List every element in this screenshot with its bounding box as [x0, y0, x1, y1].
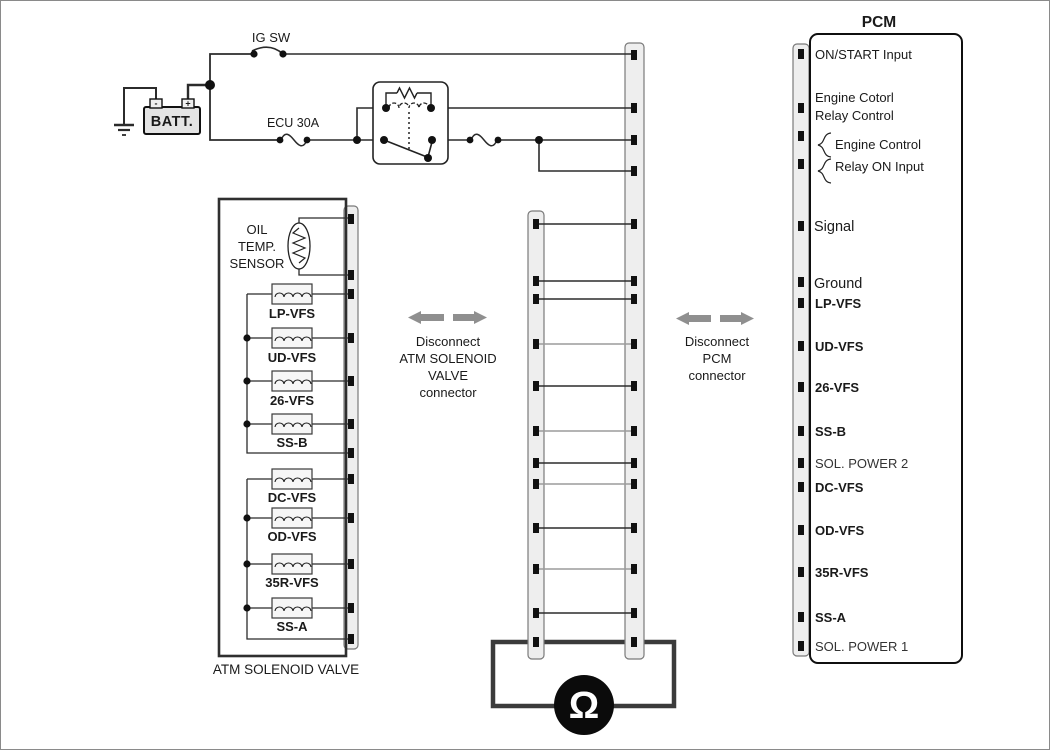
pcm-pin-label-relay-on-2: Relay ON Input	[835, 159, 924, 174]
pcm-pin-label-ss-b: SS-B	[815, 424, 846, 439]
pcm-pin-label-od-vfs: OD-VFS	[815, 523, 864, 538]
coil-label-35r-vfs: 35R-VFS	[265, 575, 319, 590]
pcm-title: PCM	[862, 14, 896, 31]
disconnect-atm-text: ATM SOLENOID	[399, 351, 496, 366]
pcm-pin-label-on-start: ON/START Input	[815, 47, 912, 62]
disconnect-atm-annotation: Disconnect ATM SOLENOID VALVE connector	[399, 311, 496, 400]
ohmmeter-symbol: Ω	[569, 685, 599, 727]
ground-icon	[114, 125, 134, 135]
pcm-pin-label-ud-vfs: UD-VFS	[815, 339, 864, 354]
pcm-pin-label-ground: Ground	[814, 276, 862, 292]
pcm-pin-label-sol-power-1: SOL. POWER 1	[815, 639, 908, 654]
battery-label: BATT.	[151, 114, 194, 130]
atm-solenoid-valve-box: OIL TEMP. SENSOR	[219, 199, 346, 656]
disconnect-pcm-text: connector	[688, 368, 746, 383]
oil-temp-sensor-label: TEMP.	[238, 239, 276, 254]
disconnect-atm-text: VALVE	[428, 368, 468, 383]
pcm-pin-label-sol-power-2: SOL. POWER 2	[815, 456, 908, 471]
coil-label-ss-b: SS-B	[276, 435, 307, 450]
ig-sw-label: IG SW	[252, 30, 291, 45]
disconnect-arrows-icon	[408, 311, 487, 324]
pcm-pin-label-signal: Signal	[814, 219, 854, 235]
pcm-pin-label-relay-control-2: Relay Control	[815, 108, 894, 123]
coil-label-od-vfs: OD-VFS	[267, 529, 316, 544]
ecu-fuse-icon	[281, 134, 307, 146]
pcm-pin-label-dc-vfs: DC-VFS	[815, 480, 864, 495]
relay-fuse-icon	[471, 134, 497, 146]
ecu-fuse-label: ECU 30A	[267, 116, 320, 130]
wiring-diagram-page: - + BATT. IG SW ECU 30A OIL TEMP. SENSOR	[0, 0, 1050, 750]
coil-label-26-vfs: 26-VFS	[270, 393, 314, 408]
disconnect-pcm-annotation: Disconnect PCM connector	[676, 312, 754, 383]
disconnect-pcm-text: PCM	[703, 351, 732, 366]
wiring-diagram: - + BATT. IG SW ECU 30A OIL TEMP. SENSOR	[1, 1, 1050, 751]
pcm-pin-label-relay-on-1: Engine Control	[835, 137, 921, 152]
disconnect-pcm-text: Disconnect	[685, 334, 750, 349]
engine-control-relay	[373, 82, 448, 164]
oil-temp-sensor-label: OIL	[247, 222, 268, 237]
coil-label-ud-vfs: UD-VFS	[268, 350, 317, 365]
disconnect-arrows-icon	[676, 312, 754, 325]
battery-minus-icon: -	[155, 99, 158, 109]
disconnect-atm-text: connector	[419, 385, 477, 400]
ohmmeter: Ω	[554, 675, 614, 735]
pcm-pin-label-26-vfs: 26-VFS	[815, 380, 859, 395]
coil-label-dc-vfs: DC-VFS	[268, 490, 317, 505]
coil-label-ss-a: SS-A	[276, 619, 308, 634]
battery: - + BATT.	[144, 99, 200, 135]
oil-temp-sensor-label: SENSOR	[230, 256, 285, 271]
pcm-pin-label-lp-vfs: LP-VFS	[815, 296, 862, 311]
disconnect-atm-text: Disconnect	[416, 334, 481, 349]
harness-wires	[536, 224, 634, 613]
pcm-pin-label-relay-control-1: Engine Cotorl	[815, 90, 894, 105]
pcm-pin-label-ss-a: SS-A	[815, 610, 847, 625]
pcm-box: PCM ON/START Input Engine Cotorl Relay C…	[810, 14, 962, 663]
pcm-pin-label-35r-vfs: 35R-VFS	[815, 565, 869, 580]
atm-solenoid-valve-caption: ATM SOLENOID VALVE	[213, 662, 359, 677]
solenoid-coils	[272, 284, 312, 618]
coil-label-lp-vfs: LP-VFS	[269, 306, 316, 321]
battery-plus-icon: +	[185, 99, 190, 109]
